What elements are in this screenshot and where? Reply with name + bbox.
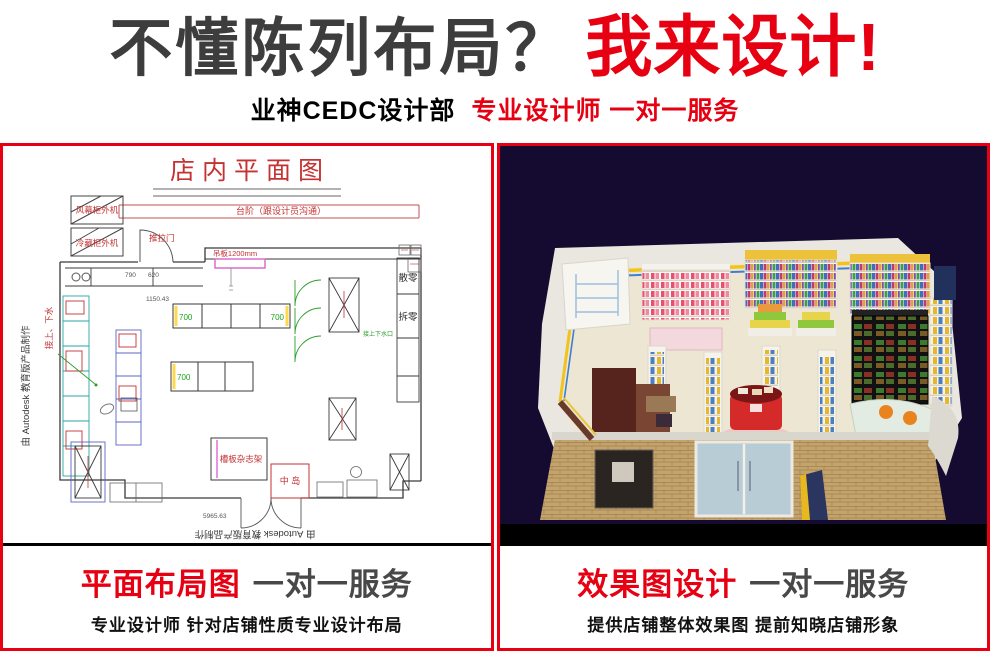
produce-rack-rim <box>852 310 928 316</box>
top-right-cabinets <box>399 245 421 272</box>
stool-1 <box>879 405 893 419</box>
step-note-label: 台阶（跟设计员沟通） <box>236 205 326 216</box>
floorplan-caption-red: 平面布局图 <box>81 567 241 602</box>
render-image <box>500 146 988 546</box>
center-island-label: 中 岛 <box>280 475 301 486</box>
bottom-fixtures <box>110 467 377 503</box>
bottom-left-rack <box>71 442 105 502</box>
right-wall-shelf <box>930 298 952 406</box>
store-render-graphic <box>500 146 988 543</box>
panel-row: 店内平面图 由 Autodesk 教育版产品制作 由 Autodesk 教育版产… <box>0 143 990 651</box>
counter-band <box>65 259 421 286</box>
water-green-label: 接上下水口 <box>363 330 393 338</box>
main-headline: 不懂陈列布局？我来设计! <box>0 4 990 91</box>
floorplan-caption: 平面布局图一对一服务 专业设计师 针对店铺性质专业设计布局 <box>3 546 491 648</box>
hanging-board-label: 吊板1200mm <box>213 248 257 258</box>
render-bottom-strip <box>500 524 988 543</box>
right-navy-panel <box>934 266 956 300</box>
render-caption-dark: 一对一服务 <box>749 567 909 602</box>
annex-room <box>562 258 630 330</box>
floorplan-title: 店内平面图 <box>170 157 330 185</box>
stool-2 <box>903 411 917 425</box>
floorplan-drawing: 店内平面图 由 Autodesk 教育版产品制作 由 Autodesk 教育版产… <box>3 146 491 543</box>
render-caption-red: 效果图设计 <box>577 567 737 602</box>
produce-rack <box>852 316 928 404</box>
machine-top-label: 风幕柜外机 <box>76 205 119 215</box>
bottom-door <box>241 498 301 528</box>
floorplan-caption-sub: 专业设计师 针对店铺性质专业设计布局 <box>3 611 491 636</box>
dim-700-g2: 700 <box>177 373 191 382</box>
render-caption-title: 效果图设计一对一服务 <box>500 559 988 604</box>
dim-1150: 1150.43 <box>146 296 169 303</box>
autodesk-watermark-left: 由 Autodesk 教育版产品制作 <box>20 325 32 446</box>
render-panel: 效果图设计一对一服务 提供店铺整体效果图 提前知晓店铺形象 <box>497 143 990 651</box>
dim-700-g1r: 700 <box>271 313 285 322</box>
header: 不懂陈列布局？我来设计! 业神CEDC设计部专业设计师 一对一服务 <box>0 0 990 143</box>
headline-answer: 我来设计! <box>585 10 880 85</box>
floorplan-image: 店内平面图 由 Autodesk 教育版产品制作 由 Autodesk 教育版产… <box>3 146 491 546</box>
loose-sale-b-label: 拆零 <box>398 311 418 323</box>
dim-620: 620 <box>148 272 159 279</box>
machine-bottom-label: 冷藏柜外机 <box>76 238 119 248</box>
water-note-label: 接上、下水 <box>44 306 54 349</box>
brand-name: 业神CEDC设计部 <box>251 97 456 125</box>
floorplan-panel: 店内平面图 由 Autodesk 教育版产品制作 由 Autodesk 教育版产… <box>0 143 494 651</box>
hanging-board-dip <box>215 259 265 268</box>
fan-displays <box>295 280 321 362</box>
headline-question: 不懂陈列布局？ <box>109 14 571 84</box>
promo-page: 不懂陈列布局？我来设计! 业神CEDC设计部专业设计师 一对一服务 店内平面图 … <box>0 0 990 651</box>
service-slogan: 专业设计师 一对一服务 <box>471 97 739 125</box>
render-caption: 效果图设计一对一服务 提供店铺整体效果图 提前知晓店铺形象 <box>500 546 988 648</box>
floorplan-caption-title: 平面布局图一对一服务 <box>3 559 491 604</box>
magazine-rack-label: 槽板杂志架 <box>220 454 263 464</box>
sub-headline: 业神CEDC设计部专业设计师 一对一服务 <box>0 91 990 127</box>
render-caption-sub: 提供店铺整体效果图 提前知晓店铺形象 <box>500 611 988 636</box>
autodesk-watermark-bottom: 由 Autodesk 教育版产品制作 <box>194 528 315 540</box>
floorplan-caption-dark: 一对一服务 <box>253 567 413 602</box>
dim-790: 790 <box>125 272 136 279</box>
loose-sale-a-label: 散零 <box>398 272 418 284</box>
dim-700-g1l: 700 <box>179 313 193 322</box>
door-label: 推拉门 <box>149 233 175 243</box>
dim-5965: 5965.63 <box>203 513 227 520</box>
